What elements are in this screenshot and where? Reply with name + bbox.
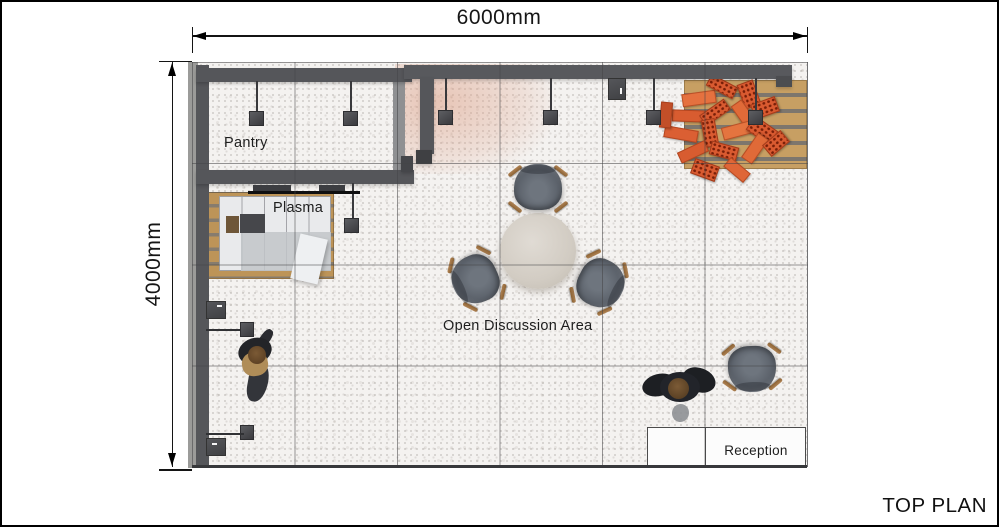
pendant-stem: [445, 78, 447, 111]
entry-column: [420, 77, 434, 154]
cabinet-object: [240, 214, 265, 233]
fixture-indicator: [212, 443, 217, 445]
chair-seat: [727, 345, 777, 393]
person: [642, 364, 718, 424]
dimension-tick: [192, 27, 194, 53]
brick-pile: [652, 72, 822, 197]
fixture-bracket: [206, 433, 244, 435]
dimension-height-line: [172, 62, 174, 467]
pendant-stem: [653, 78, 655, 111]
plasma-label: Plasma: [273, 200, 323, 216]
plasma-screen: [248, 191, 360, 194]
pendant-light-icon: [748, 110, 763, 125]
round-table: [500, 213, 576, 289]
person-head: [668, 378, 689, 399]
arrow-up-icon: [168, 63, 176, 76]
arrow-right-icon: [793, 32, 806, 40]
left-wall: [196, 65, 209, 468]
floor-bottom-edge: [192, 465, 807, 468]
pendant-stem: [755, 78, 757, 111]
main-top-wall: [404, 65, 792, 79]
pendant-light-icon: [646, 110, 661, 125]
brick: [690, 158, 720, 182]
arrow-left-icon: [193, 32, 206, 40]
person-item: [670, 402, 691, 424]
floor-plan-canvas: 6000mm 4000mm: [0, 0, 999, 527]
wall-fixture-icon: [206, 301, 226, 319]
open-discussion-label: Open Discussion Area: [443, 318, 592, 334]
chair-leg: [569, 287, 576, 303]
cabinet-object: [226, 216, 239, 233]
dimension-width-line: [192, 35, 807, 37]
pendant-stem: [550, 78, 552, 111]
pendant-light-icon: [343, 111, 358, 126]
chair-seat: [514, 164, 562, 210]
pendant-light-icon: [344, 218, 359, 233]
top-wall-right-stub: [776, 76, 792, 87]
person: [232, 328, 284, 408]
wall-unit-icon: [608, 78, 626, 100]
chair: [719, 337, 785, 399]
wall-unit-indicator: [620, 88, 622, 94]
pantry-label: Pantry: [224, 135, 268, 151]
pantry-top-wall: [196, 68, 412, 82]
dimension-height-label: 4000mm: [142, 222, 166, 307]
fixture-indicator: [217, 305, 222, 307]
pendant-light-icon: [543, 110, 558, 125]
pendant-light-icon: [249, 111, 264, 126]
pendant-stem: [352, 183, 354, 219]
arrow-down-icon: [168, 453, 176, 466]
pendant-stem: [256, 81, 258, 112]
brick: [659, 102, 673, 129]
entry-column-base: [416, 150, 432, 164]
dimension-tick: [807, 27, 809, 53]
page-title: TOP PLAN: [857, 494, 987, 518]
pantry-bottom-wall: [196, 170, 414, 184]
brick: [681, 90, 716, 108]
pendant-stem: [350, 81, 352, 112]
dimension-tick: [159, 469, 192, 471]
person-head: [248, 346, 266, 364]
dimension-width-label: 6000mm: [457, 6, 542, 30]
chair: [506, 158, 570, 218]
wall-knob: [401, 156, 413, 172]
pendant-light-icon: [438, 110, 453, 125]
wall-fixture-icon: [206, 438, 226, 456]
brick: [709, 141, 740, 162]
reception-label: Reception: [706, 443, 806, 458]
chair-leg: [499, 284, 506, 300]
